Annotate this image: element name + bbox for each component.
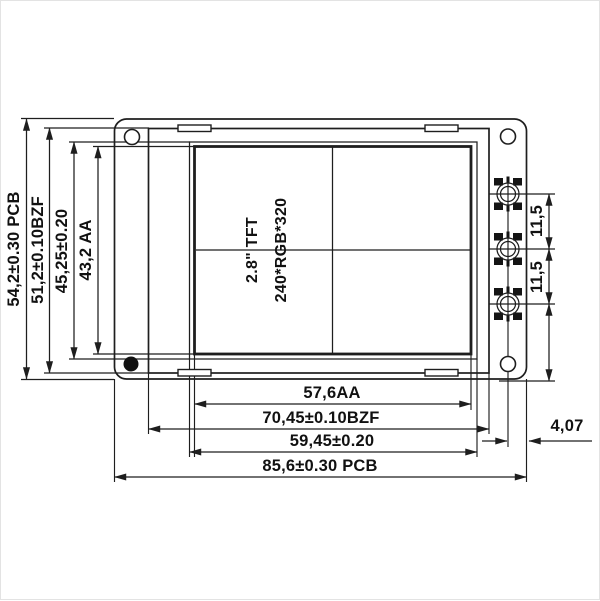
frame-tab-bottom-left bbox=[178, 370, 211, 377]
mounting-hole-bottom-right bbox=[501, 357, 516, 372]
dim-label-bzf-width: 70,45±0.10BZF bbox=[262, 409, 379, 427]
dim-label-pcb-width: 85,6±0.30 PCB bbox=[262, 457, 377, 475]
pin1-marker-dot bbox=[124, 357, 139, 372]
dim-label-glass-height: 45,25±0.20 bbox=[53, 209, 71, 293]
pcb-outline bbox=[115, 119, 527, 379]
dim-label-switch-pitch-1: 11,5 bbox=[528, 205, 546, 237]
drawing-canvas: 2.8" TFT 240*RGB*320 54 bbox=[1, 1, 600, 601]
dim-label-edge-offset: 4,07 bbox=[551, 417, 584, 435]
frame-tab-top-left bbox=[178, 125, 211, 132]
dim-label-aa-width: 57,6AA bbox=[303, 384, 360, 402]
dim-label-bzf-height: 51,2±0.10BZF bbox=[29, 196, 47, 304]
tft-module-dimension-drawing: 2.8" TFT 240*RGB*320 54 bbox=[0, 0, 600, 600]
lcd-frame-outline bbox=[149, 129, 490, 374]
dim-label-switch-pitch-2: 11,5 bbox=[528, 261, 546, 293]
display-size-text: 2.8" TFT bbox=[244, 217, 261, 283]
mounting-hole-top-right bbox=[501, 129, 516, 144]
dim-label-aa-height: 43,2 AA bbox=[77, 219, 95, 280]
mounting-hole-top-left bbox=[125, 130, 140, 145]
dim-label-glass-width: 59,45±0.20 bbox=[290, 432, 374, 450]
dim-label-pcb-height: 54,2±0.30 PCB bbox=[5, 191, 23, 306]
left-dimensions: 54,2±0.30 PCB 51,2±0.10BZF 45,25±0.20 43… bbox=[5, 119, 98, 379]
frame-tab-top-right bbox=[425, 125, 458, 132]
display-resolution-text: 240*RGB*320 bbox=[273, 198, 290, 303]
display-area-group: 2.8" TFT 240*RGB*320 bbox=[190, 142, 478, 359]
frame-tab-bottom-right bbox=[425, 370, 458, 377]
bottom-dimensions: 57,6AA 70,45±0.10BZF 59,45±0.20 85,6±0.3… bbox=[115, 384, 527, 477]
pcb-group bbox=[115, 119, 527, 379]
